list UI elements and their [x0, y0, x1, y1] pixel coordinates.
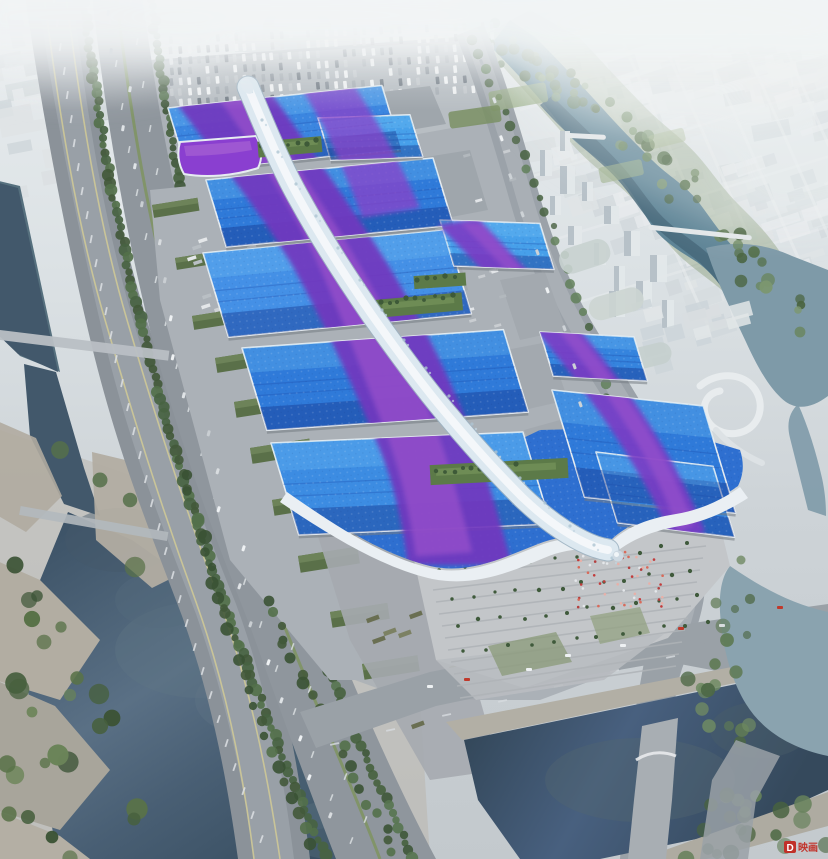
svg-text:D: D — [787, 843, 794, 854]
svg-text:映画: 映画 — [798, 841, 818, 854]
